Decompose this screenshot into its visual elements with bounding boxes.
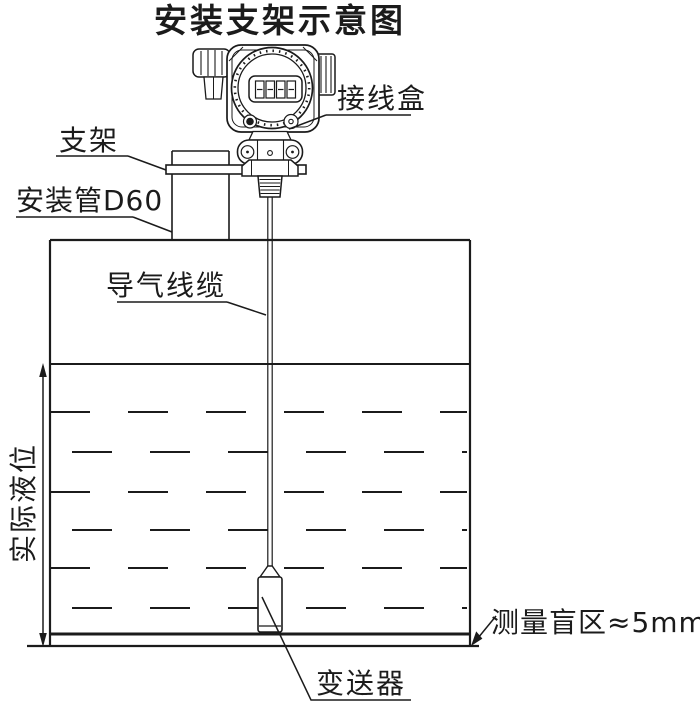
lcd-display <box>249 76 302 102</box>
junction-box-label: 接线盒 <box>337 82 427 115</box>
bracket-label: 支架 <box>59 124 119 157</box>
arrow-up-icon <box>39 363 47 377</box>
neck <box>249 132 291 141</box>
hex-nut <box>242 160 298 176</box>
page-title: 安装支架示意图 <box>154 1 406 40</box>
mounting-pipe-label: 安装管D60 <box>16 184 163 217</box>
air-cable-leader <box>227 302 266 315</box>
blind-zone-label: 测量盲区≈5mm <box>491 606 700 639</box>
transmitter-label: 变送器 <box>316 667 406 700</box>
probe-shell <box>258 577 282 632</box>
air-cable-label: 导气线缆 <box>106 269 226 302</box>
suspension-cable <box>268 197 272 567</box>
callout-mounting-pipe: 安装管D60 <box>16 184 172 232</box>
callout-transmitter: 变送器 <box>262 597 411 700</box>
bolt-dot-icon <box>246 118 254 126</box>
callout-air-cable: 导气线缆 <box>106 269 266 315</box>
installation-diagram: 实际液位 <box>0 0 700 708</box>
bracket-leader <box>128 156 166 170</box>
callout-blind-zone: 测量盲区≈5mm <box>471 606 700 646</box>
mounting-pipe-leader <box>133 217 172 232</box>
threaded-stem <box>258 176 282 197</box>
probe-body <box>258 566 282 632</box>
cable-gland <box>193 49 230 99</box>
tank <box>27 240 479 646</box>
actual-level-label: 实际液位 <box>7 443 40 563</box>
probe-taper <box>260 566 280 577</box>
actual-level-dimension: 实际液位 <box>7 363 47 647</box>
callout-bracket: 支架 <box>56 124 166 170</box>
